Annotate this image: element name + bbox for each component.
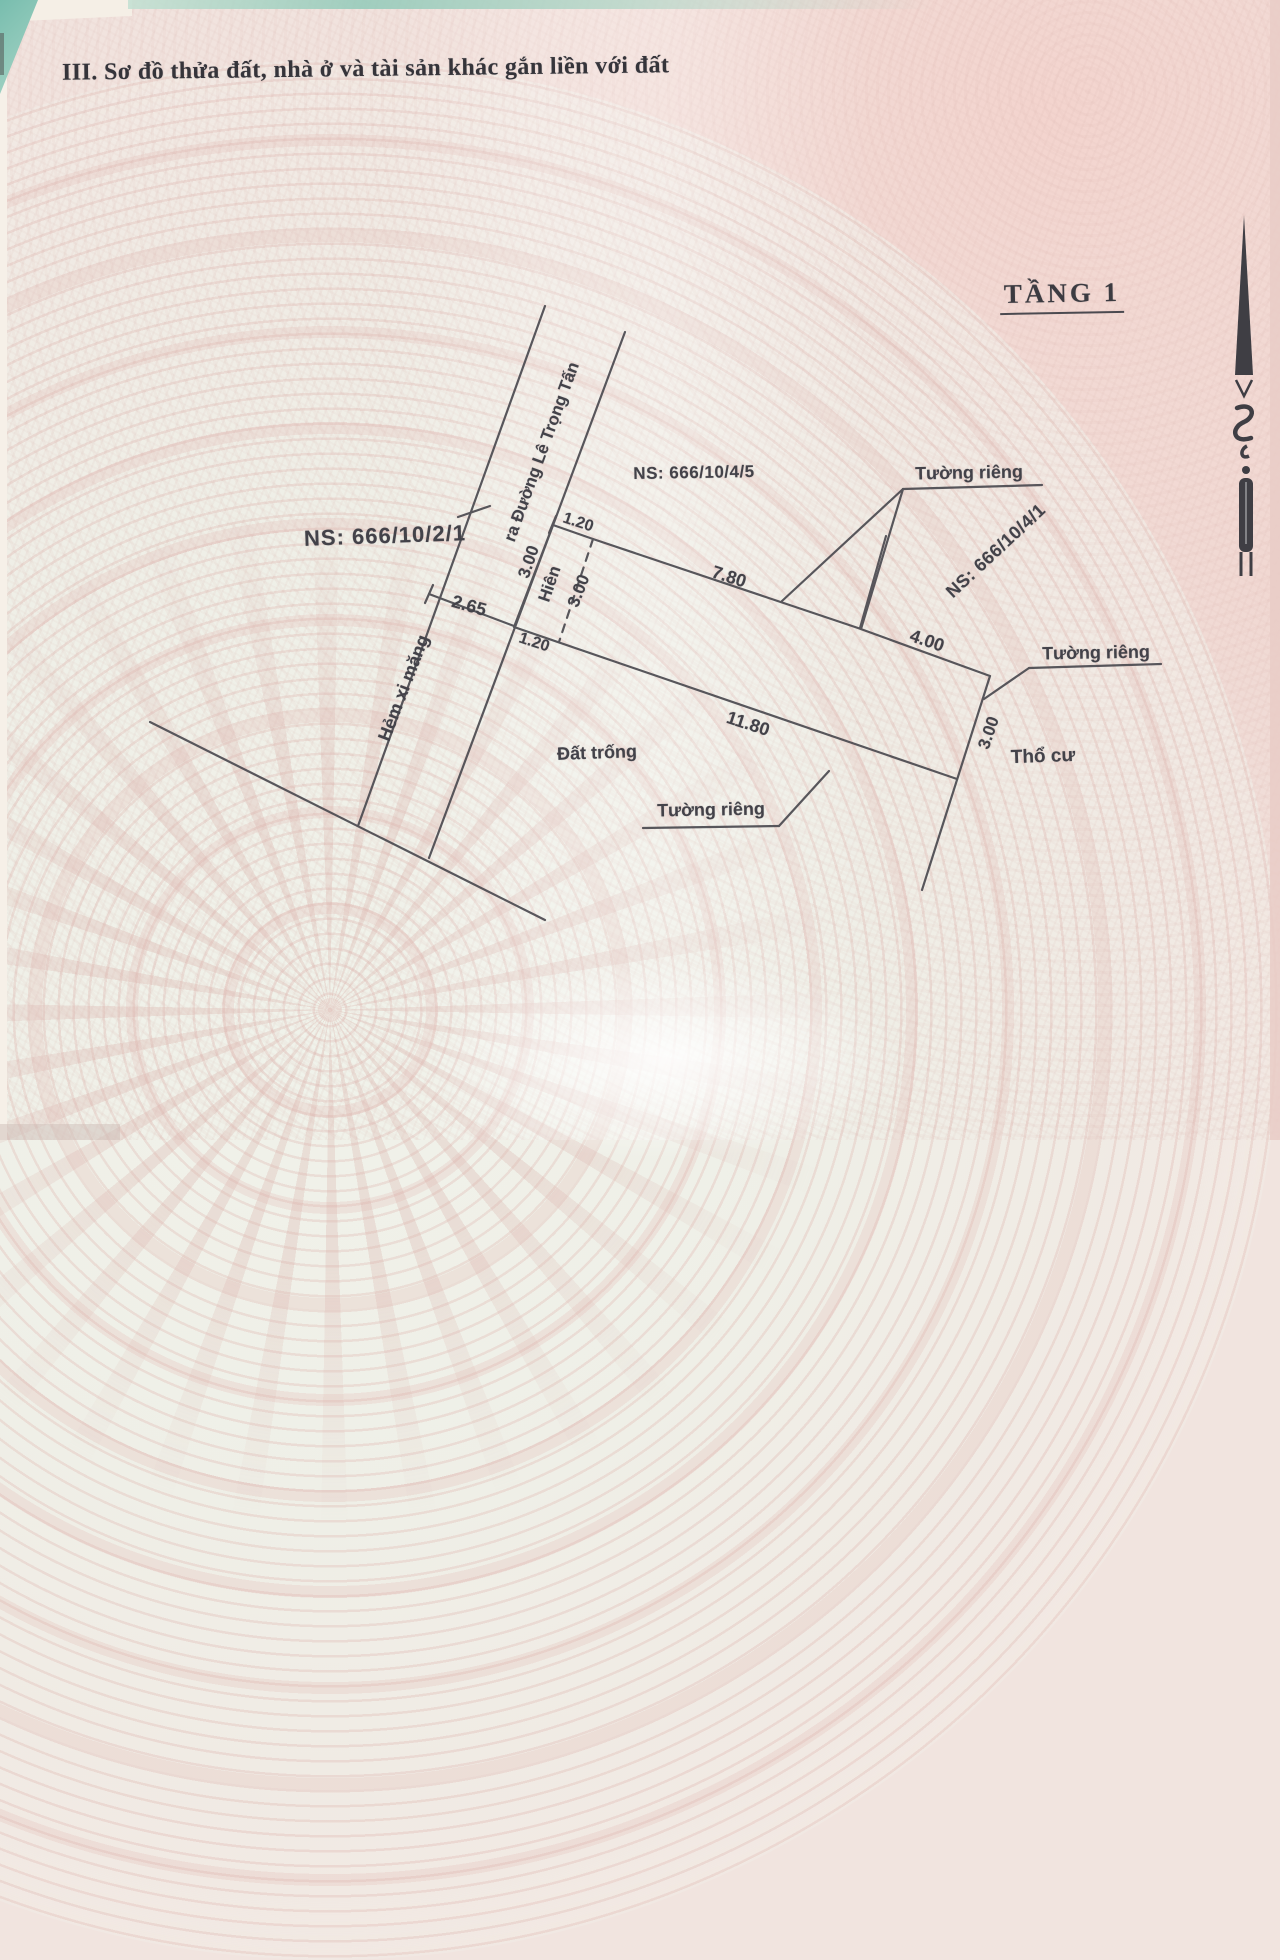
north-arrow-icon <box>1235 215 1253 576</box>
street-direction-dash <box>458 506 490 517</box>
wall-top-underline <box>903 485 1042 489</box>
wall-top-leader <box>782 489 903 601</box>
wall-east-underline <box>1029 664 1161 668</box>
cadastral-line-drawing <box>0 0 1280 1140</box>
wall-east-leader <box>984 668 1029 699</box>
wall-label-south: Tường riêng <box>657 799 765 822</box>
porch-corner-tick <box>549 516 556 533</box>
wall-top-wedge-b <box>860 536 886 628</box>
vacant-land-label: Đất trống <box>557 741 638 765</box>
wall-label-east: Tường riêng <box>1042 642 1150 665</box>
residential-land-label: Thổ cư <box>1010 745 1075 769</box>
parcel-east-edge <box>922 676 990 890</box>
wall-south-leader <box>779 771 829 826</box>
wall-south-underline <box>643 826 779 828</box>
wall-label-top: Tường riêng <box>915 462 1023 485</box>
boundary-diagonal-line <box>150 722 545 920</box>
parcel-north-edge <box>553 525 990 676</box>
floor-title: TẦNG 1 <box>1000 277 1125 315</box>
wall-top-wedge-a <box>861 489 903 629</box>
parcel-label-north: NS: 666/10/4/5 <box>633 462 755 484</box>
